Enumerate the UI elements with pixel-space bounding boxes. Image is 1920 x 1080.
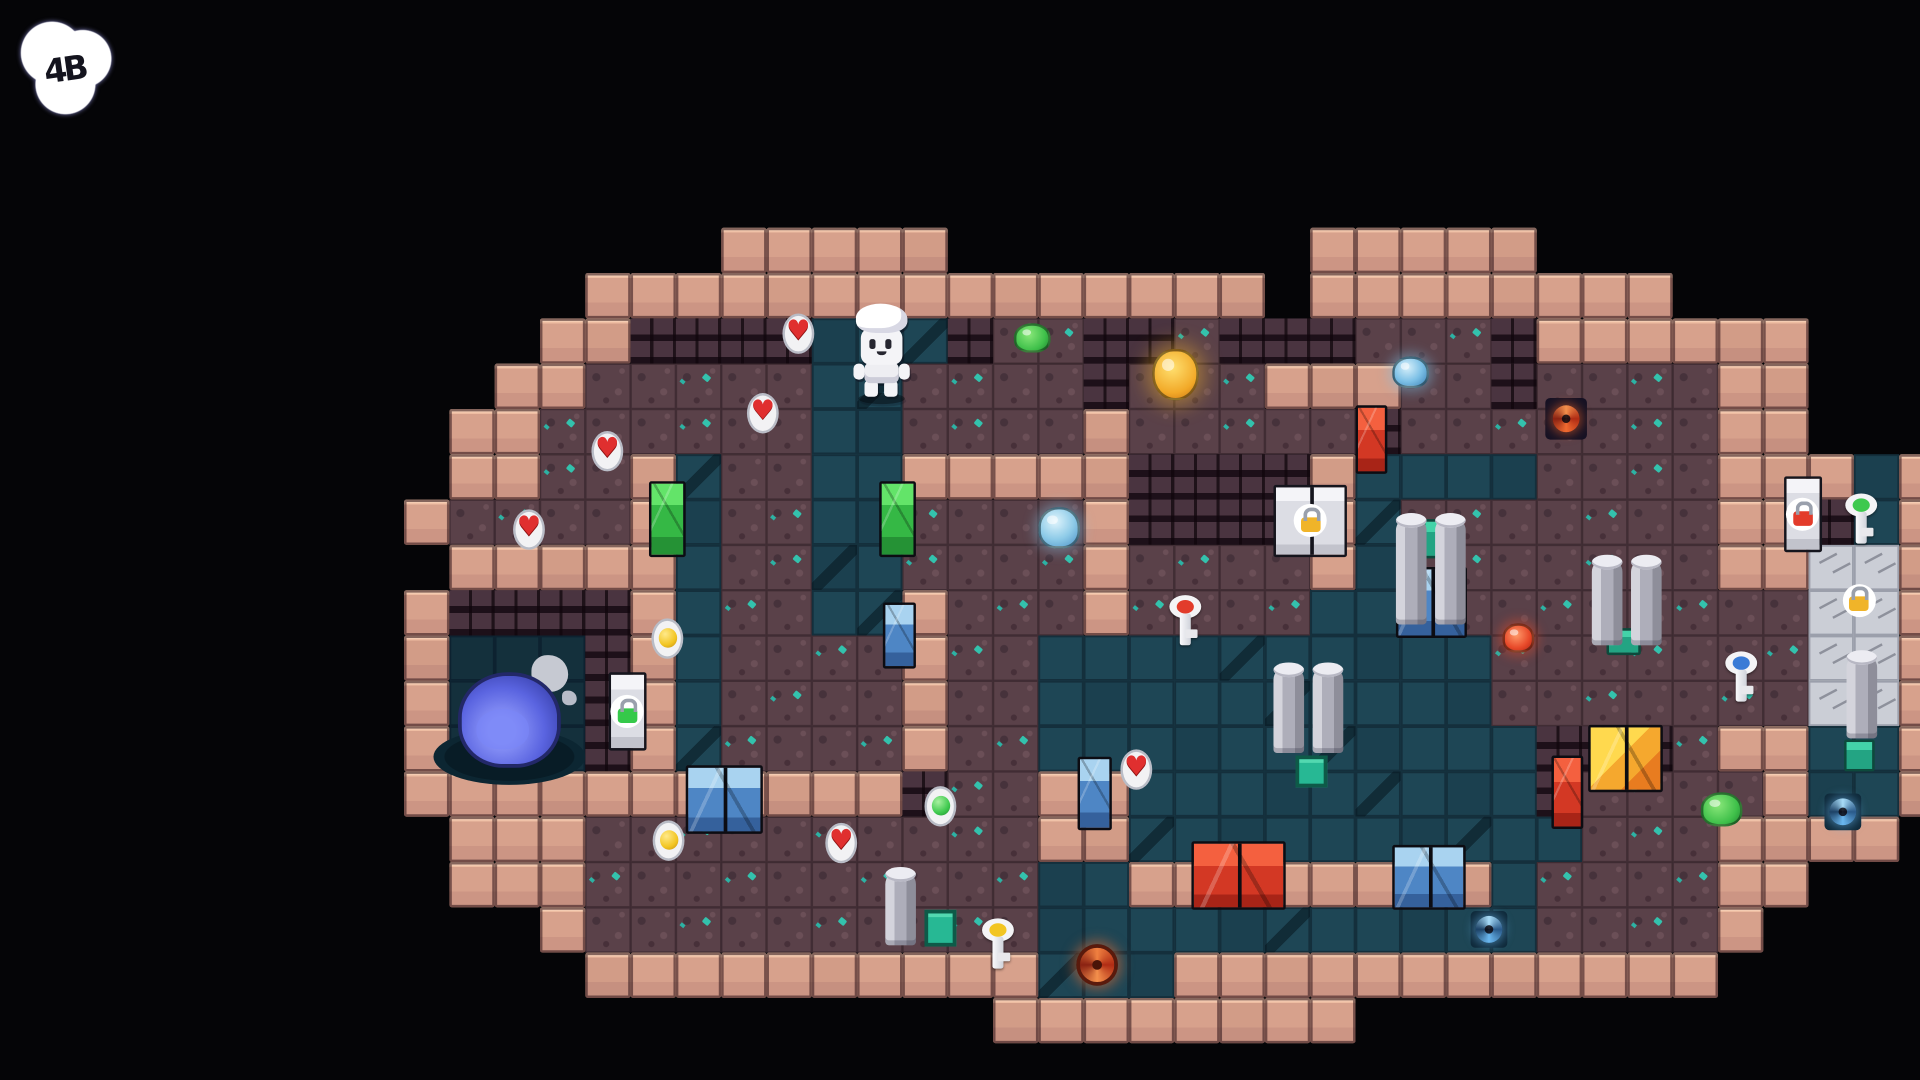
entity-layer: ♥♥♥♥♥♥ xyxy=(0,0,1920,1080)
pillar-pair-east-north xyxy=(1395,517,1465,624)
slime-gold xyxy=(1152,349,1199,400)
key-yellow[interactable] xyxy=(980,918,1017,972)
heart-pickup-5[interactable]: ♥ xyxy=(1120,749,1152,789)
pillar-pair-east xyxy=(1591,560,1661,646)
key-blue[interactable] xyxy=(1723,651,1760,705)
blue-door-mid[interactable] xyxy=(1078,757,1112,830)
red-double-door-south[interactable] xyxy=(1191,841,1285,910)
teal-gate-3[interactable] xyxy=(1843,740,1874,772)
speech-bubble: 4B xyxy=(20,20,116,118)
gold-lock-gate[interactable] xyxy=(1842,583,1875,616)
green-door-west[interactable] xyxy=(649,481,686,557)
slime-blue xyxy=(1392,356,1429,388)
locked-door-green[interactable] xyxy=(608,672,646,750)
blue-double-door-southwest[interactable] xyxy=(685,765,762,834)
emerald-panel-2 xyxy=(924,910,956,947)
red-door-east[interactable] xyxy=(1551,756,1583,829)
heart-pickup-1[interactable]: ♥ xyxy=(782,313,814,353)
slime-lightblue xyxy=(1038,507,1080,549)
heart-pickup-3[interactable]: ♥ xyxy=(591,430,623,470)
portal-blue-east[interactable] xyxy=(1824,793,1861,830)
blue-double-door-south[interactable] xyxy=(1392,844,1465,909)
player-character[interactable] xyxy=(853,304,909,402)
heart-pickup-2[interactable]: ♥ xyxy=(747,392,779,432)
orb-pickup-yellow-1[interactable] xyxy=(651,618,683,658)
locked-door-red[interactable] xyxy=(1783,476,1821,552)
slime-red xyxy=(1502,623,1534,652)
slime-green-1 xyxy=(1014,323,1051,352)
orange-swirl-orb xyxy=(1076,944,1118,986)
game-viewport[interactable]: ♥♥♥♥♥♥ 4B xyxy=(0,0,1920,1080)
blue-door-upper[interactable] xyxy=(882,602,915,668)
orb-pickup-green[interactable] xyxy=(924,786,956,826)
orb-pickup-yellow-2[interactable] xyxy=(653,820,685,860)
key-green[interactable] xyxy=(1843,493,1880,547)
key-red[interactable] xyxy=(1167,595,1204,649)
heart-pickup-6[interactable]: ♥ xyxy=(825,822,857,862)
emerald-panel-1 xyxy=(1296,756,1328,788)
portal-red[interactable] xyxy=(1545,398,1587,440)
pillar-pair-center xyxy=(1273,667,1343,753)
silver-locked-door-gold[interactable] xyxy=(1273,484,1346,556)
big-blue-slime xyxy=(458,672,561,768)
game-screen: ♥♥♥♥♥♥ 4B xyxy=(0,0,1920,1080)
gold-double-door[interactable] xyxy=(1588,724,1663,791)
green-door-mid[interactable] xyxy=(879,481,916,557)
speech-bubble-glyphs: 4B xyxy=(42,49,88,92)
portal-blue-south[interactable] xyxy=(1471,911,1508,948)
pillar-single-south xyxy=(885,872,916,945)
heart-pickup-4[interactable]: ♥ xyxy=(513,509,545,549)
pillar-single-east xyxy=(1846,655,1877,738)
slime-green-2 xyxy=(1701,792,1743,826)
red-door-north[interactable] xyxy=(1356,405,1388,474)
